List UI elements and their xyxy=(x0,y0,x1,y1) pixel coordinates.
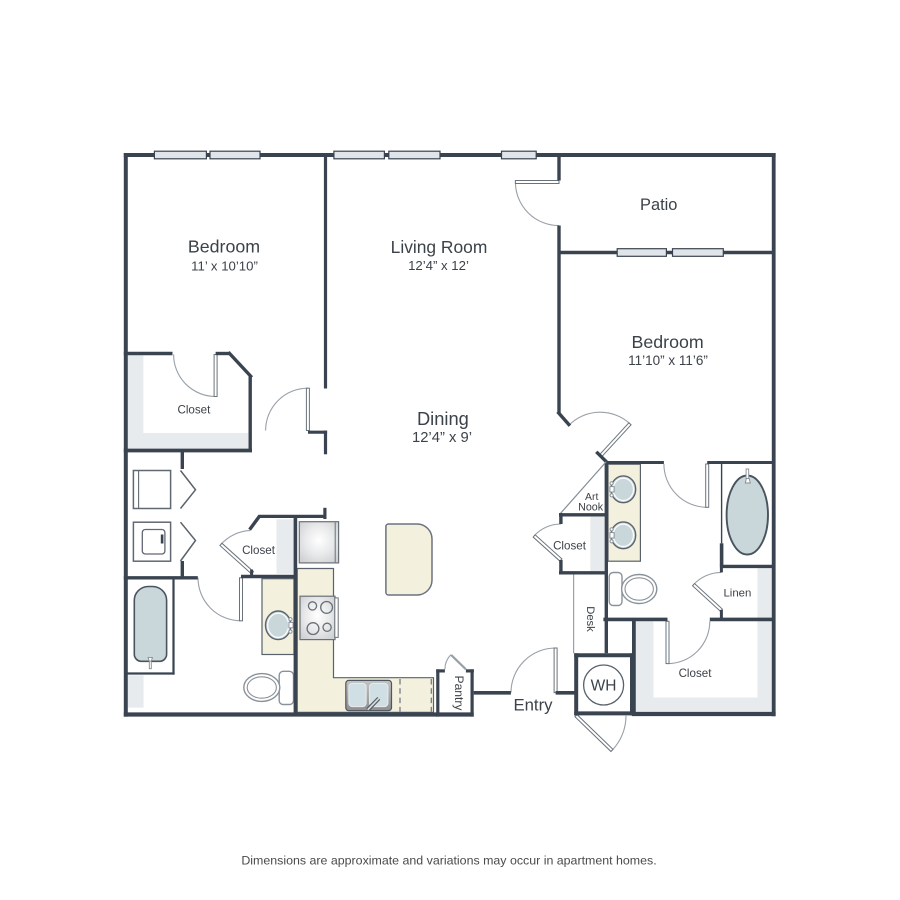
svg-text:Nook: Nook xyxy=(578,502,604,514)
svg-text:Pantry: Pantry xyxy=(452,676,466,712)
svg-text:Living Room: Living Room xyxy=(391,237,488,257)
svg-text:12’4” x 9’: 12’4” x 9’ xyxy=(412,430,472,446)
svg-text:Closet: Closet xyxy=(177,404,211,417)
svg-text:Closet: Closet xyxy=(679,667,713,680)
svg-text:Linen: Linen xyxy=(723,587,751,599)
svg-text:Bedroom: Bedroom xyxy=(632,332,704,352)
svg-text:11’ x 10’10”: 11’ x 10’10” xyxy=(191,259,258,274)
svg-text:Bedroom: Bedroom xyxy=(188,237,260,257)
svg-text:12’4” x 12’: 12’4” x 12’ xyxy=(408,258,469,273)
svg-text:Desk: Desk xyxy=(584,606,596,632)
svg-text:Closet: Closet xyxy=(553,540,587,553)
svg-text:Entry: Entry xyxy=(514,695,554,714)
svg-text:Dimensions are approximate and: Dimensions are approximate and variation… xyxy=(241,853,656,867)
svg-text:Dining: Dining xyxy=(417,408,469,429)
svg-text:Closet: Closet xyxy=(242,544,276,557)
svg-text:11’10” x 11’6”: 11’10” x 11’6” xyxy=(628,353,708,368)
svg-text:WH: WH xyxy=(591,678,617,695)
svg-text:Patio: Patio xyxy=(640,196,677,214)
